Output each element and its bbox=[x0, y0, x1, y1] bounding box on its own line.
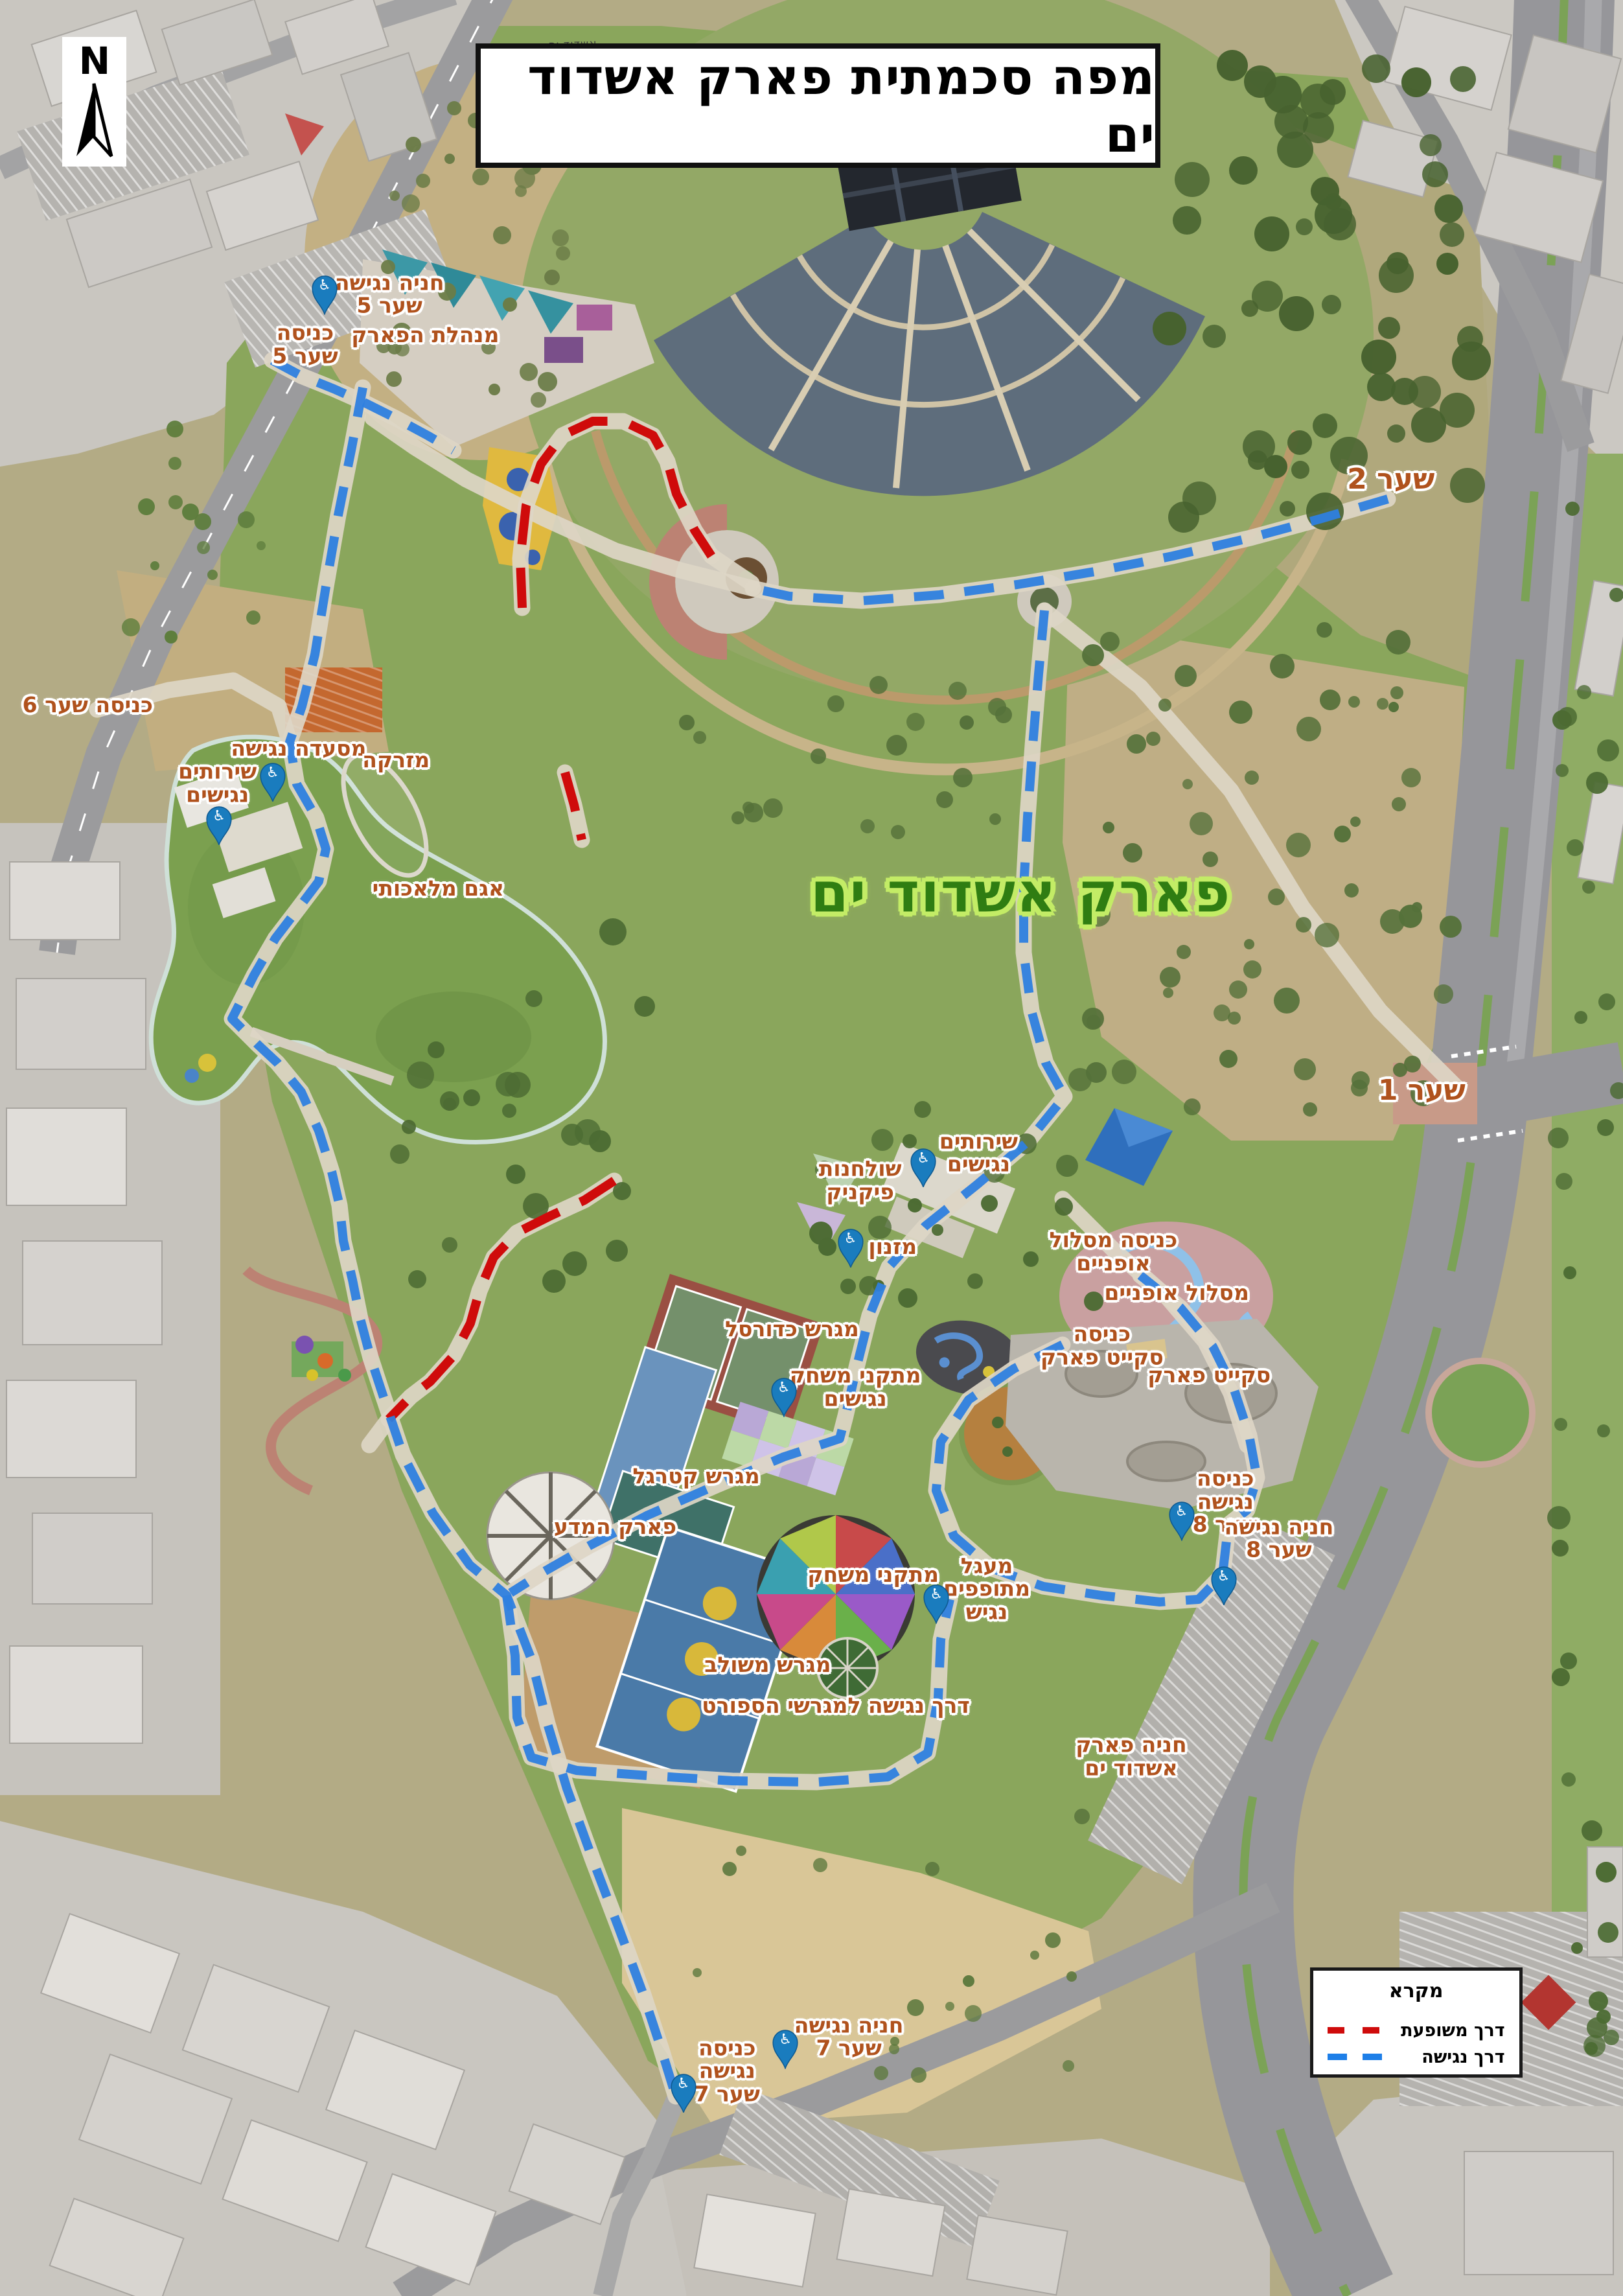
map-label: כניסה נגישה שער 7 bbox=[695, 2036, 760, 2105]
map-label: כניסה סקייט פארק bbox=[1041, 1323, 1164, 1369]
map-label: דרך נגישה למגרשי הספורט bbox=[702, 1695, 970, 1718]
park-name-label: פארק אשדוד ים bbox=[811, 864, 1231, 923]
map-label: פארק המדע bbox=[554, 1515, 676, 1538]
map-label: כניסה שער 6 bbox=[23, 693, 153, 717]
map-label: כניסה מסלול אופניים bbox=[1050, 1228, 1178, 1274]
map-label: מסעדה נגישה bbox=[231, 737, 366, 760]
map-label: חניה נגישה שער 8 bbox=[1225, 1515, 1334, 1561]
accessible-road-dash-icon bbox=[1328, 2051, 1387, 2063]
legend-item-accessible: דרך נגישה bbox=[1328, 2047, 1505, 2067]
map-label: מגרש משולב bbox=[704, 1653, 831, 1676]
legend: מקרא דרך משופעת דרך נגישה bbox=[1310, 1967, 1523, 2078]
wheelchair-icon: ♿ bbox=[770, 2033, 800, 2047]
map-label: מתקני משחק bbox=[807, 1564, 939, 1587]
wheelchair-icon: ♿ bbox=[204, 809, 234, 824]
map-label: שער 1 bbox=[1378, 1075, 1466, 1106]
sloped-road-dash-icon bbox=[1328, 2024, 1387, 2037]
accessible-parking-gate5-pin: ♿ bbox=[310, 275, 340, 314]
map-label: מסלול אופניים bbox=[1104, 1281, 1249, 1305]
accessible-entrance-gate7-pin: ♿ bbox=[669, 2074, 698, 2113]
wheelchair-icon: ♿ bbox=[921, 1588, 951, 1602]
wheelchair-icon: ♿ bbox=[836, 1232, 866, 1246]
legend-item-sloped: דרך משופעת bbox=[1328, 2021, 1505, 2041]
map-title-box: מפה סכמתית פארק אשדוד ים bbox=[476, 43, 1160, 167]
wheelchair-icon: ♿ bbox=[1167, 1505, 1197, 1519]
map-label: חניה נגישה שער 7 bbox=[794, 2013, 904, 2059]
map-stage: אשדוד ים מפה סכמתית פארק אשדוד ים N מקרא… bbox=[0, 0, 1623, 2296]
legend-title: מקרא bbox=[1328, 1980, 1505, 2002]
map-label: חניה נגישה שער 5 bbox=[335, 271, 444, 317]
accessible-entrance-gate8-pin: ♿ bbox=[1167, 1502, 1197, 1540]
wheelchair-icon: ♿ bbox=[669, 2077, 698, 2091]
satellite-map bbox=[0, 0, 1623, 2296]
wheelchair-icon: ♿ bbox=[1209, 1570, 1239, 1584]
accessible-drum-circle-pin: ♿ bbox=[921, 1584, 951, 1623]
map-label: מגרש כדורסל bbox=[725, 1318, 859, 1341]
map-label: שירותים נגישים bbox=[178, 760, 257, 806]
map-label: מזנון bbox=[868, 1235, 917, 1258]
accessible-kiosk-pin: ♿ bbox=[836, 1229, 866, 1268]
north-letter: N bbox=[79, 42, 111, 80]
map-label: מתקני משחק נגישים bbox=[790, 1363, 921, 1409]
map-label: שער 2 bbox=[1347, 465, 1434, 496]
map-title: מפה סכמתית פארק אשדוד ים bbox=[481, 48, 1155, 163]
accessible-parking-gate7-pin: ♿ bbox=[770, 2030, 800, 2069]
wheelchair-icon: ♿ bbox=[310, 279, 340, 293]
accessible-toilets-center-pin: ♿ bbox=[908, 1148, 938, 1187]
wheelchair-icon: ♿ bbox=[258, 766, 288, 780]
map-label: מעגל מתופפים נגיש bbox=[943, 1554, 1030, 1623]
north-arrow: N bbox=[62, 37, 126, 167]
wheelchair-icon: ♿ bbox=[769, 1381, 799, 1395]
accessible-parking-gate8-pin: ♿ bbox=[1209, 1566, 1239, 1605]
map-label: מנהלת הפארק bbox=[351, 323, 499, 347]
wheelchair-icon: ♿ bbox=[908, 1152, 938, 1166]
map-label: סקייט פארק bbox=[1147, 1363, 1271, 1387]
accessible-restaurant-pin: ♿ bbox=[258, 763, 288, 802]
map-label: כניסה שער 5 bbox=[272, 321, 338, 367]
north-arrow-icon bbox=[62, 80, 126, 164]
legend-label-sloped: דרך משופעת bbox=[1401, 2021, 1505, 2041]
legend-label-accessible: דרך נגישה bbox=[1422, 2047, 1504, 2067]
map-label: מגרש קטרגל bbox=[632, 1465, 759, 1488]
map-label: חניה פארק אשדוד ים bbox=[1076, 1734, 1186, 1780]
map-label: מזרקה bbox=[362, 748, 430, 772]
accessible-toilets-west-pin: ♿ bbox=[204, 806, 234, 845]
accessible-playground-pin: ♿ bbox=[769, 1378, 799, 1417]
map-label: אגם מלאכותי bbox=[373, 877, 504, 900]
map-label: שירותים נגישים bbox=[939, 1130, 1018, 1176]
map-label: שולחנות פיקניק bbox=[819, 1157, 902, 1203]
